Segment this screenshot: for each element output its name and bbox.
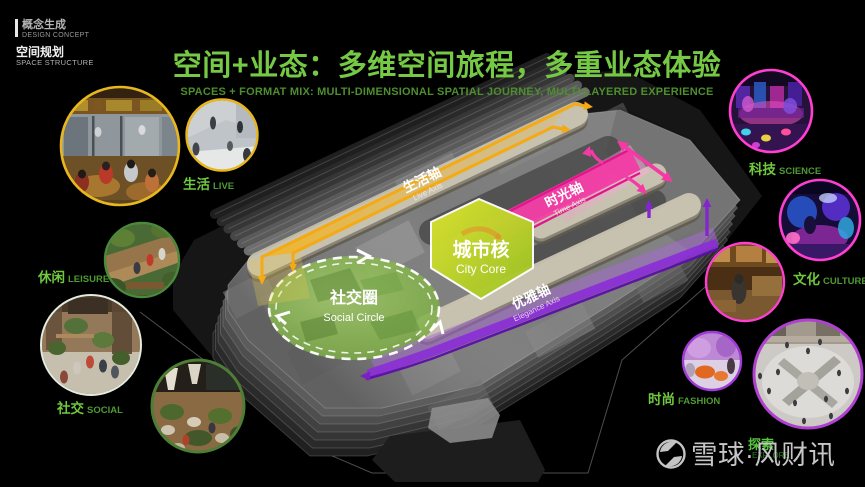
- svg-text:DESIGN CONCEPT: DESIGN CONCEPT: [22, 32, 90, 39]
- svg-text:SPACES + FORMAT MIX: MULTI-DIM: SPACES + FORMAT MIX: MULTI-DIMENSIONAL S…: [180, 86, 713, 98]
- svg-text:概念生成: 概念生成: [22, 17, 66, 31]
- svg-text:城市核: 城市核: [452, 238, 509, 261]
- svg-text:空间+业态：多维空间旅程，多重业态体验: 空间+业态：多维空间旅程，多重业态体验: [173, 48, 721, 82]
- svg-text:雪球·风财讯: 雪球·风财讯: [691, 440, 835, 470]
- svg-text:SPACE STRUCTURE: SPACE STRUCTURE: [16, 58, 94, 67]
- svg-text:空间规划: 空间规划: [16, 44, 64, 59]
- svg-text:City Core: City Core: [456, 262, 506, 276]
- svg-text:社交圈: 社交圈: [329, 288, 378, 307]
- svg-text:Social Circle: Social Circle: [323, 312, 384, 324]
